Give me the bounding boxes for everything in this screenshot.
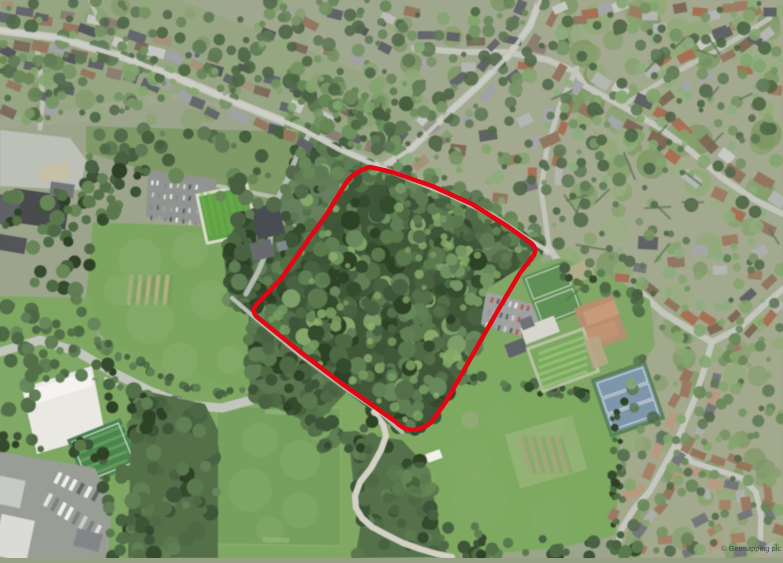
svg-text:© Getmapping plc: © Getmapping plc (721, 544, 781, 553)
